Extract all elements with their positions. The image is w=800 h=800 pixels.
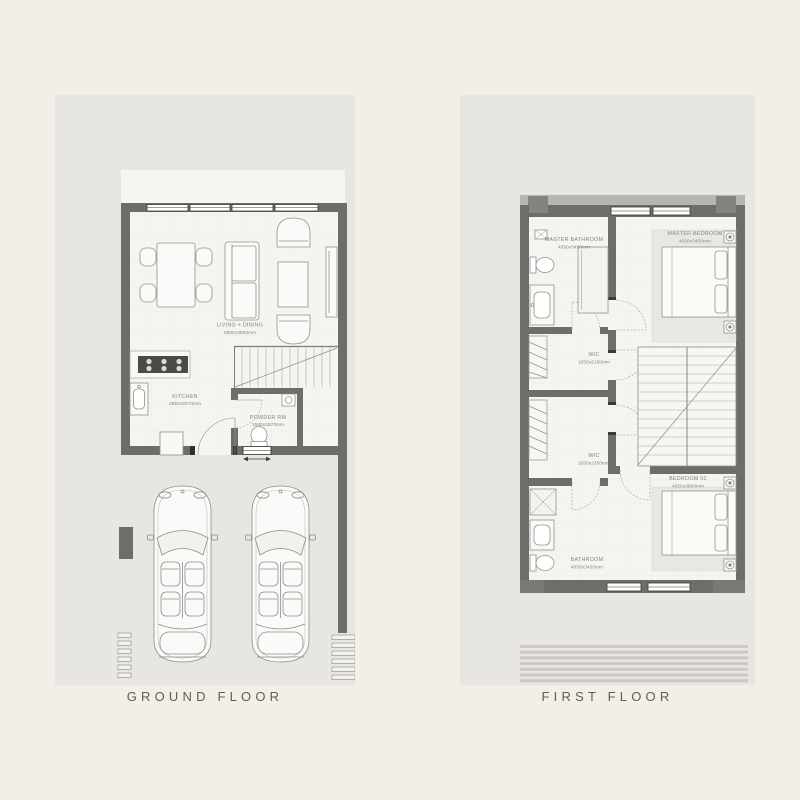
ground-floor-plan: LIVING + DINING 5800x3550mm KITCHEN 2950…	[55, 95, 355, 685]
bathroom-vanity	[530, 520, 554, 550]
ground-floor-title: GROUND FLOOR	[55, 689, 355, 704]
dining-chair	[196, 248, 212, 266]
nightstand	[724, 321, 736, 333]
living-dining-label: LIVING + DINING	[217, 323, 263, 329]
entrance-opening	[195, 446, 233, 455]
dining-chair	[140, 248, 156, 266]
nightstand	[724, 231, 736, 243]
kitchen-cabinet	[160, 432, 183, 455]
tv-console	[326, 247, 337, 317]
dining-chair	[196, 284, 212, 302]
powder-sink	[282, 394, 295, 406]
master-bedroom-label: MASTER BEDROOM	[667, 231, 723, 237]
living-dining-dims: 5800x3550mm	[224, 330, 256, 335]
coffee-table	[278, 262, 308, 307]
shower	[530, 489, 556, 515]
master-toilet	[530, 257, 554, 273]
bathroom	[530, 489, 556, 571]
car-icon	[148, 486, 218, 662]
master-bathroom-label: MASTER BATHROOM	[545, 237, 604, 243]
pillow	[715, 494, 727, 520]
first-staircase	[638, 347, 736, 466]
wic-upper-label: WIC	[588, 352, 599, 358]
dining-table	[157, 243, 195, 307]
pillow	[715, 251, 727, 279]
pillow	[715, 285, 727, 313]
dining-chair	[140, 284, 156, 302]
floorplan-page: LIVING + DINING 5800x3550mm KITCHEN 2950…	[0, 0, 800, 800]
powder-toilet	[251, 427, 267, 447]
nightstand	[724, 559, 736, 571]
wic-lower-dims: 1650x2350mm	[578, 461, 610, 466]
armchair	[277, 218, 310, 247]
wic-lower-closet	[529, 400, 547, 460]
bedroom-02-dims: 4050x3800mm	[672, 484, 704, 489]
armchair	[277, 315, 310, 344]
powder-room-label: POWDER RM	[250, 415, 287, 421]
car-icon	[246, 486, 316, 662]
master-bathroom-dims: 4050x3450mm	[558, 245, 590, 250]
master-shower	[578, 247, 608, 313]
front-patio	[121, 170, 345, 203]
sofa	[225, 242, 259, 320]
living-windows	[147, 205, 318, 212]
wic-upper-closet	[529, 336, 547, 378]
kitchen-sink	[130, 383, 148, 415]
wic-lower-label: WIC	[588, 453, 599, 459]
kitchen-label: KITCHEN	[172, 394, 197, 400]
first-floor-title: FIRST FLOOR	[460, 689, 755, 704]
kitchen-dims: 2950x2570mm	[169, 401, 201, 406]
bathroom-label: BATHROOM	[571, 557, 604, 563]
master-bedroom-dims: 4050x3450mm	[679, 239, 711, 244]
boundary-pillar	[119, 527, 133, 559]
bathroom-dims: 4050x3450mm	[571, 565, 603, 570]
first-floor-plan: MASTER BATHROOM 4050x3450mm MASTER BEDRO…	[460, 95, 755, 685]
powder-room-dims: 1580x2570mm	[252, 422, 284, 427]
pillow	[715, 525, 727, 551]
bedroom-02	[652, 477, 736, 571]
wic-upper-dims: 1650x2150mm	[578, 360, 610, 365]
bedroom-02-label: BEDROOM 02	[669, 476, 707, 482]
master-bedroom	[652, 230, 736, 342]
threshold-window	[243, 447, 271, 462]
master-vanity	[530, 285, 554, 325]
nightstand	[724, 477, 736, 489]
bathroom-toilet	[530, 555, 554, 571]
